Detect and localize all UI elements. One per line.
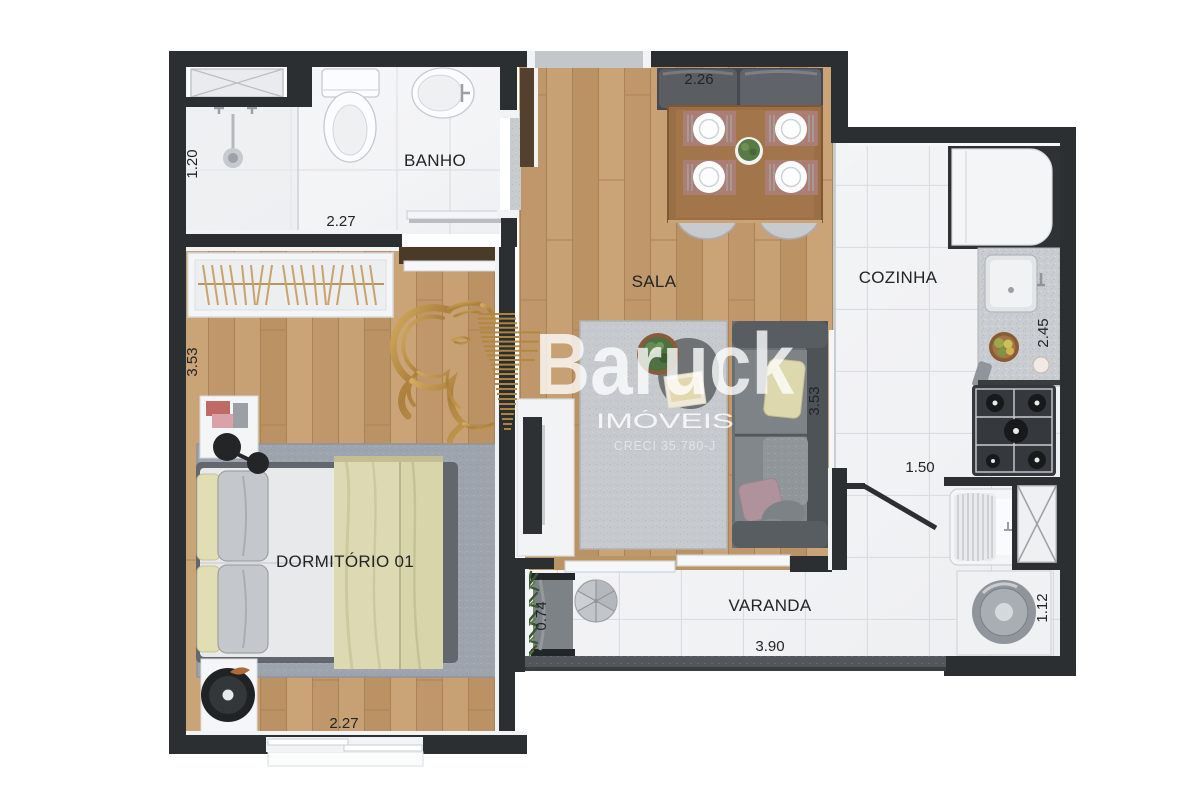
svg-text:Baruck: Baruck <box>535 316 795 413</box>
svg-text:SALA: SALA <box>632 272 677 291</box>
svg-text:3.90: 3.90 <box>755 638 784 655</box>
svg-text:2.27: 2.27 <box>326 213 355 230</box>
svg-text:2.45: 2.45 <box>1035 318 1052 347</box>
svg-text:0.74: 0.74 <box>533 601 550 630</box>
svg-text:3.53: 3.53 <box>806 386 823 415</box>
svg-text:CRECI 35.780-J: CRECI 35.780-J <box>614 439 716 453</box>
svg-text:2.27: 2.27 <box>329 715 358 732</box>
svg-text:3.53: 3.53 <box>184 347 201 376</box>
svg-text:DORMITÓRIO 01: DORMITÓRIO 01 <box>276 552 414 571</box>
svg-text:2.26: 2.26 <box>684 71 713 88</box>
svg-text:VARANDA: VARANDA <box>728 596 811 615</box>
svg-text:IMÓVEIS: IMÓVEIS <box>596 410 734 433</box>
svg-text:1.12: 1.12 <box>1034 593 1051 622</box>
svg-text:1.20: 1.20 <box>184 149 201 178</box>
svg-text:BANHO: BANHO <box>404 151 466 170</box>
svg-text:1.50: 1.50 <box>905 459 934 476</box>
svg-text:COZINHA: COZINHA <box>859 268 938 287</box>
